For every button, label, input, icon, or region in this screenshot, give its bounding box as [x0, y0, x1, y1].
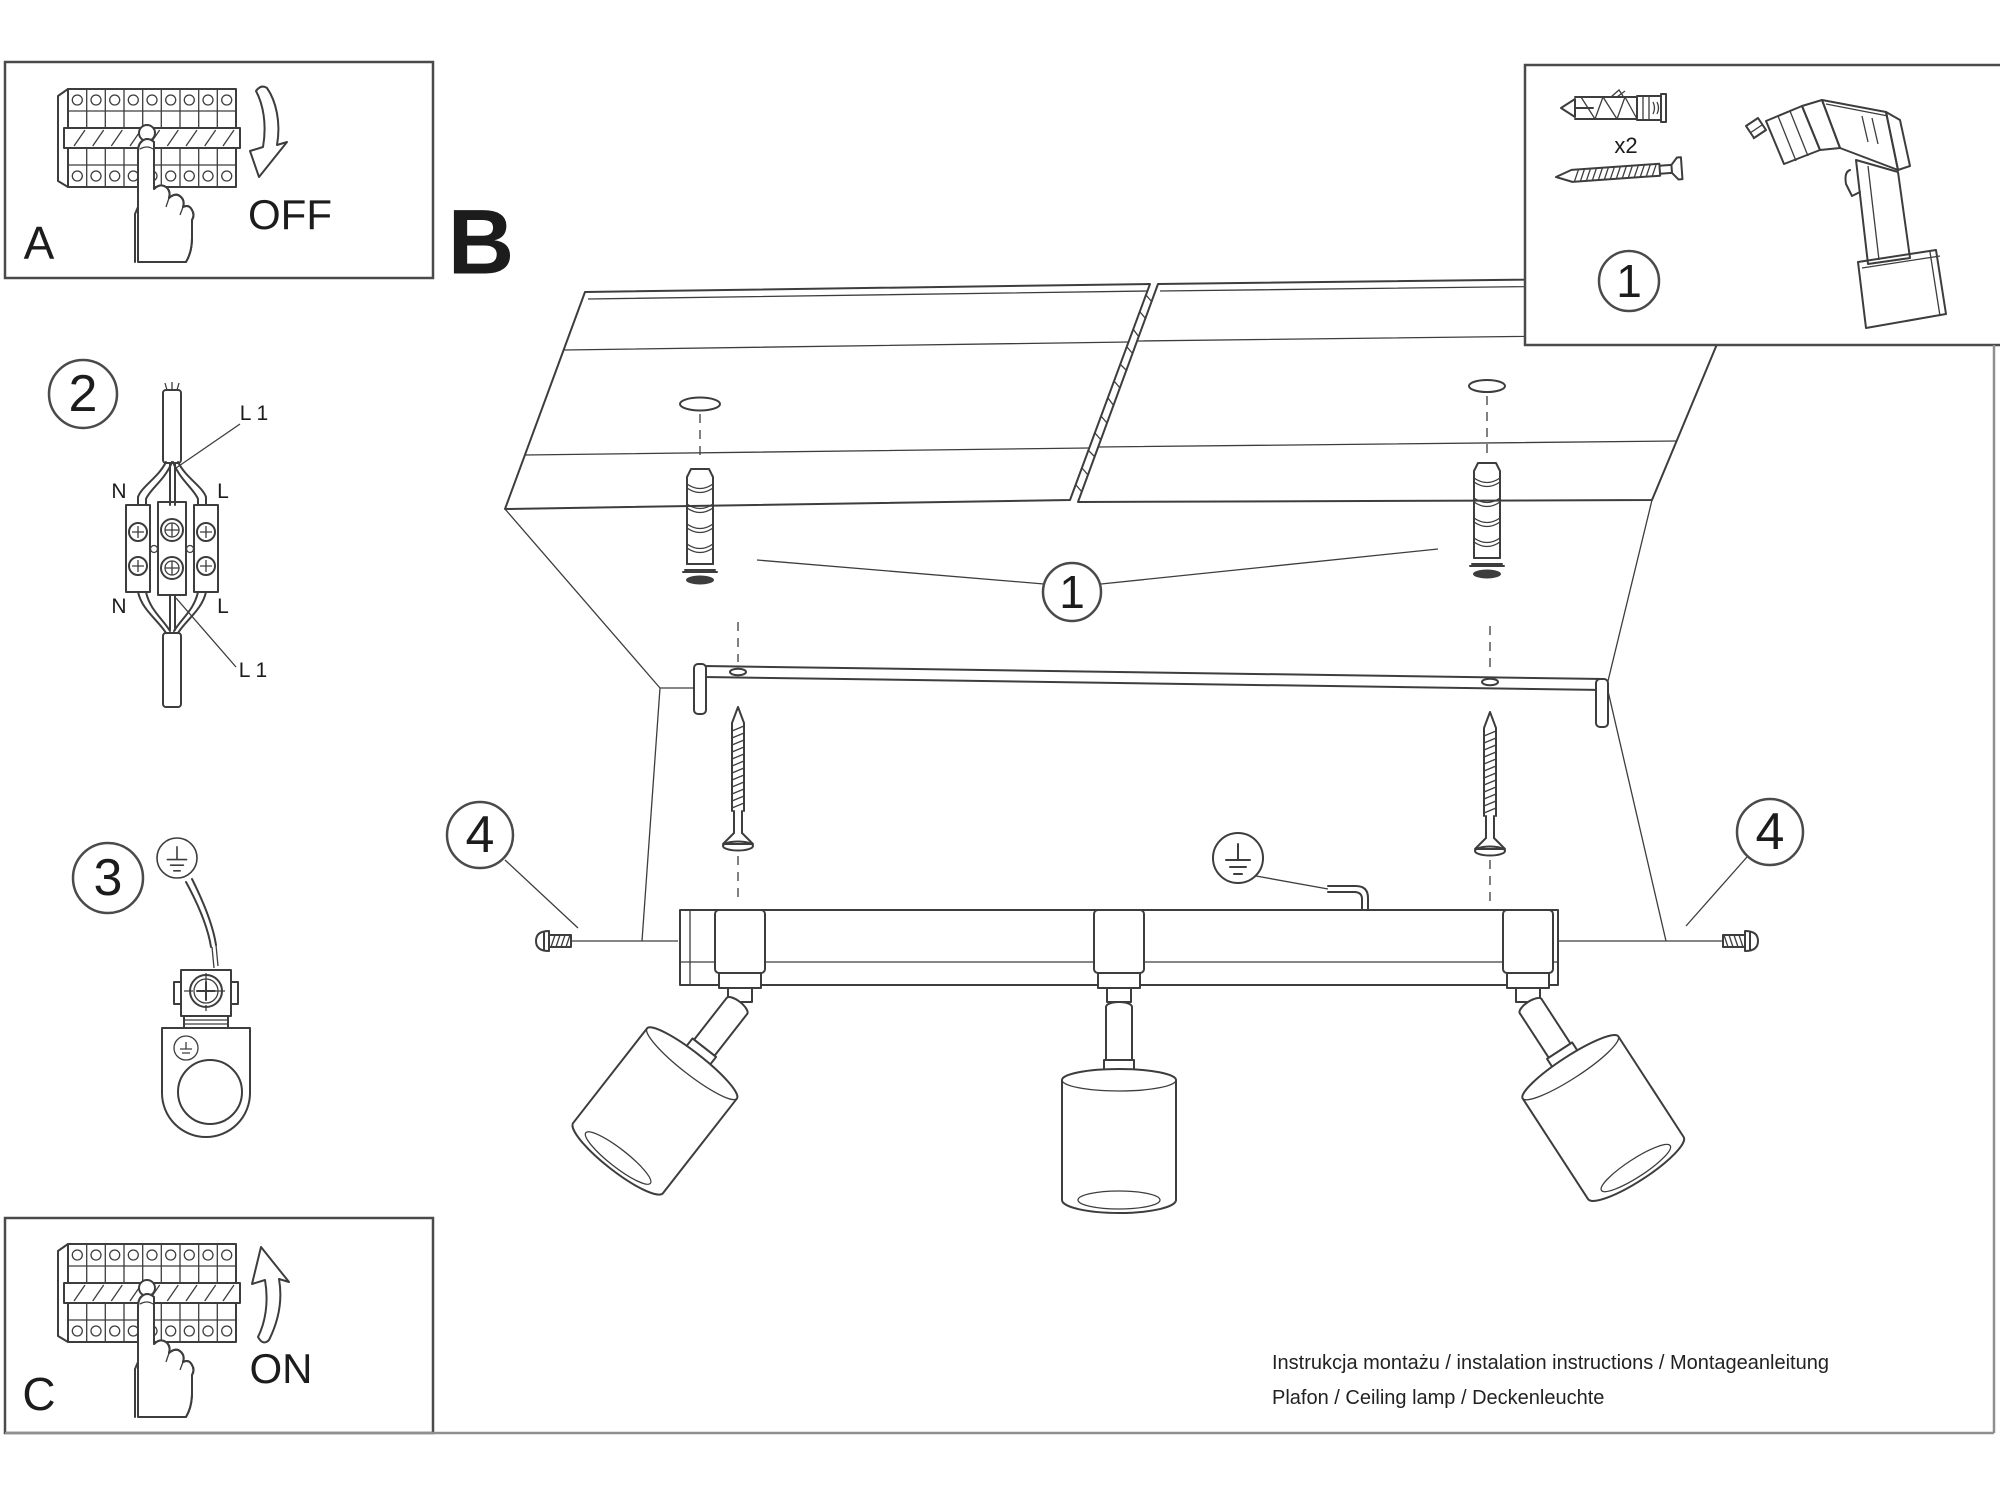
- bar-tab-right: [1503, 910, 1553, 1002]
- side-screw-left: [536, 931, 571, 951]
- wire-n-bottom-label: N: [111, 595, 126, 619]
- panel-c-box: [5, 1218, 433, 1433]
- mounting-screw-left: [723, 707, 753, 851]
- wire-l1-top-label: L 1: [240, 402, 268, 426]
- section-b-label: B: [448, 191, 514, 296]
- wire-l1-bottom-label: L 1: [239, 659, 267, 683]
- alignment-guides: [505, 500, 1722, 941]
- panel-a-box: [5, 62, 433, 278]
- ground-terminal: [162, 970, 250, 1137]
- bar-tab-middle: [1094, 910, 1144, 1002]
- ground-symbol-main: [1213, 833, 1328, 889]
- terminal-screws: [129, 519, 215, 579]
- section-a-label: A: [24, 216, 55, 270]
- drill-holes: [680, 380, 1505, 462]
- marker-1-parts: 1: [1616, 254, 1642, 308]
- wire-l-top-label: L: [217, 480, 229, 504]
- parts-box: [1525, 65, 2000, 345]
- wire-n-top-label: N: [111, 480, 126, 504]
- marker-circles: [447, 563, 1803, 928]
- marker-4-right: 4: [1756, 802, 1785, 862]
- ground-cable: [1328, 886, 1368, 910]
- off-label: OFF: [248, 191, 332, 239]
- marker-2: 2: [69, 364, 98, 424]
- marker-4-left: 4: [466, 805, 495, 865]
- side-screw-right: [1723, 931, 1758, 951]
- wall-plug-left: [683, 469, 717, 585]
- footer-line-1: Instrukcja montażu / instalation instruc…: [1272, 1352, 1829, 1375]
- panel-seam: [1076, 295, 1152, 492]
- on-label: ON: [250, 1345, 313, 1393]
- wall-plug-right: [1470, 463, 1504, 579]
- footer-line-2: Plafon / Ceiling lamp / Deckenleuchte: [1272, 1387, 1604, 1410]
- wire-l-bottom-label: L: [217, 595, 229, 619]
- mounting-screw-right: [1475, 712, 1505, 856]
- mounting-bracket: [694, 664, 1608, 727]
- bar-tab-left: [715, 910, 765, 1002]
- spotlight-middle: [1062, 1002, 1176, 1213]
- centerlines: [738, 622, 1490, 906]
- dowel-quantity: x2: [1614, 133, 1637, 159]
- marker-3: 3: [94, 848, 123, 908]
- marker-1-main: 1: [1059, 565, 1085, 619]
- spotlight-right: [1480, 971, 1691, 1210]
- instruction-sheet: A B C OFF ON 1 1 2 3 4 4 x2 L 1 L 1 N L …: [0, 0, 2000, 1500]
- section-c-label: C: [22, 1367, 55, 1421]
